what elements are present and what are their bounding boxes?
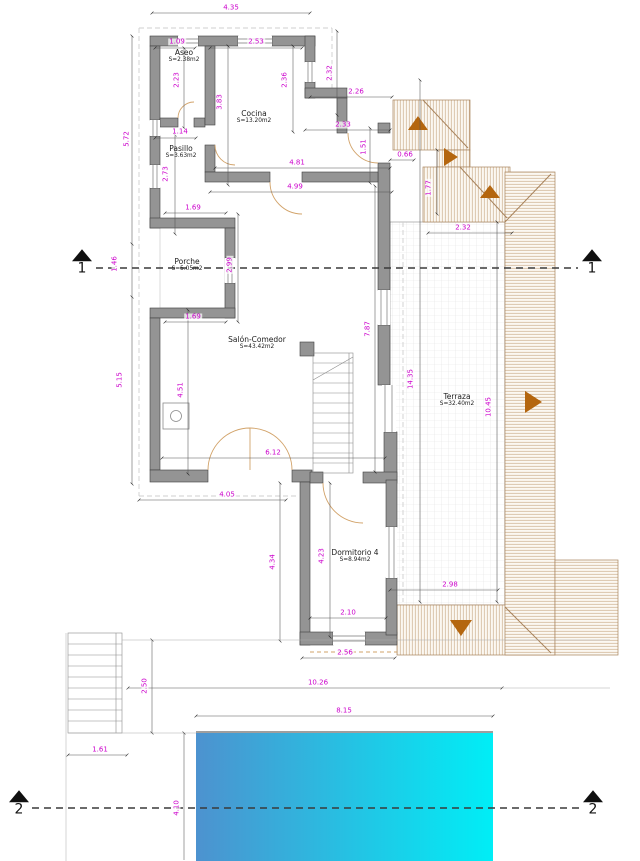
- dimension-label: 2.36: [282, 71, 289, 89]
- dimension-label: 14.35: [408, 368, 415, 390]
- swimming-pool: [196, 732, 493, 861]
- exterior-stair: [68, 633, 122, 733]
- bedroom-door-arc: [323, 483, 363, 523]
- dimension-label: 1.77: [426, 179, 433, 197]
- dimension-label: 2.99: [227, 256, 234, 274]
- dimension-label: 4.34: [270, 553, 277, 571]
- dimension-label: 10.45: [486, 396, 493, 418]
- interior-stair: [313, 353, 353, 473]
- section-marker: 2: [583, 790, 603, 817]
- dimension-label: 3.83: [217, 93, 224, 111]
- dimension-label: 4.23: [319, 547, 326, 565]
- dimension-label: 6.12: [264, 450, 282, 457]
- room-label: PorcheS=5.05m2: [172, 258, 203, 272]
- room-name: Cocina: [237, 110, 271, 118]
- room-label: Dormitorio 4S=8.94m2: [331, 549, 378, 563]
- dimension-label: 8.15: [335, 708, 353, 715]
- dimension-label: 4.35: [222, 5, 240, 12]
- dimension-label: 1.14: [171, 129, 189, 136]
- room-area: S=43.42m2: [228, 344, 286, 350]
- dimension-label: 2.23: [174, 71, 181, 89]
- room-label: TerrazaS=32.40m2: [440, 393, 474, 407]
- dimension-label: 1.69: [184, 314, 202, 321]
- dimension-label: 1.09: [168, 39, 186, 46]
- dimension-label: 2.50: [142, 677, 149, 695]
- fireplace-fixture: [163, 403, 189, 429]
- room-area: S=3.63m2: [166, 153, 197, 159]
- dimension-label: 7.87: [365, 320, 372, 338]
- dimension-label: 2.98: [441, 582, 459, 589]
- room-label: PasilloS=3.63m2: [166, 145, 197, 159]
- room-name: Dormitorio 4: [331, 549, 378, 557]
- aseo-door-arc: [178, 102, 194, 118]
- room-area: S=8.94m2: [331, 557, 378, 563]
- dimension-label: 1.51: [361, 138, 368, 156]
- dimension-label: 4.51: [178, 381, 185, 399]
- dimension-label: 2.26: [347, 89, 365, 96]
- floor-plan-drawing: [0, 0, 640, 861]
- dimension-label: 5.72: [124, 130, 131, 148]
- room-name: Terraza: [440, 393, 474, 401]
- room-label: AseoS=2.38m2: [169, 49, 200, 63]
- section-number: 1: [72, 261, 92, 276]
- dimension-label: 2.73: [163, 165, 170, 183]
- dimension-label: 5.15: [117, 371, 124, 389]
- dimension-label: 10.26: [307, 680, 329, 687]
- room-area: S=2.38m2: [169, 57, 200, 63]
- dimension-label: 1.46: [112, 255, 119, 273]
- dimension-label: 2.10: [339, 610, 357, 617]
- dimension-label: 4.81: [288, 160, 306, 167]
- room-area: S=32.40m2: [440, 401, 474, 407]
- dimension-label: 2.56: [336, 650, 354, 657]
- section-marker: 1: [72, 249, 92, 276]
- dimension-label: 1.61: [91, 747, 109, 754]
- room-name: Pasillo: [166, 145, 197, 153]
- room-label: CocinaS=13.20m2: [237, 110, 271, 124]
- section-marker: 1: [582, 249, 602, 276]
- section-number: 2: [583, 802, 603, 817]
- room-name: Salón-Comedor: [228, 336, 286, 344]
- section-number: 1: [582, 261, 602, 276]
- room-label: Salón-ComedorS=43.42m2: [228, 336, 286, 350]
- dimension-label: 2.33: [334, 122, 352, 129]
- dimension-label: 0.66: [396, 152, 414, 159]
- section-number: 2: [9, 802, 29, 817]
- room-area: S=5.05m2: [172, 266, 203, 272]
- room-area: S=13.20m2: [237, 118, 271, 124]
- french-door-arc: [208, 428, 250, 470]
- dimension-label: 4.05: [218, 492, 236, 499]
- dimension-label: 2.32: [454, 225, 472, 232]
- dimension-label: 4.99: [286, 184, 304, 191]
- dimension-label: 2.32: [327, 64, 334, 82]
- dimension-label: 1.69: [184, 205, 202, 212]
- hall-door-arc: [215, 145, 235, 165]
- dimension-label: 4.10: [174, 799, 181, 817]
- dimension-label: 2.53: [247, 39, 265, 46]
- room-name: Aseo: [169, 49, 200, 57]
- section-marker: 2: [9, 790, 29, 817]
- room-name: Porche: [172, 258, 203, 266]
- floor-plan-canvas: 4.351.092.532.262.330.661.144.814.991.69…: [0, 0, 640, 861]
